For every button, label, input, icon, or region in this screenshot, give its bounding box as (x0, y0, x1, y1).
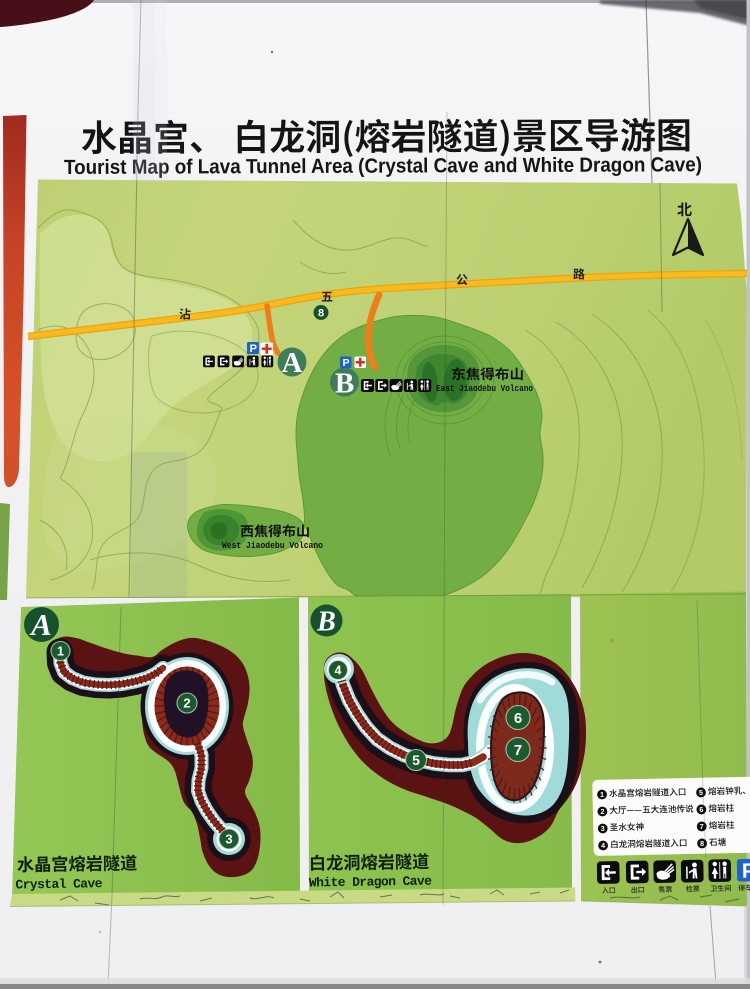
svg-text:7: 7 (700, 822, 704, 831)
svg-text:P: P (342, 357, 349, 369)
svg-text:B: B (335, 368, 354, 400)
svg-text:B: B (316, 607, 336, 638)
svg-text:3: 3 (601, 824, 605, 833)
svg-text:2: 2 (183, 696, 190, 711)
svg-text:1: 1 (57, 645, 64, 659)
svg-text:6: 6 (514, 710, 522, 727)
svg-text:Crystal Cave: Crystal Cave (15, 876, 102, 892)
svg-text:5: 5 (699, 788, 703, 797)
svg-text:6: 6 (699, 805, 703, 814)
svg-text:White Dragon Cave: White Dragon Cave (309, 874, 432, 891)
svg-text:4: 4 (335, 664, 342, 678)
svg-text:A: A (282, 347, 303, 379)
svg-text:A: A (29, 607, 52, 642)
svg-text:7: 7 (514, 742, 522, 759)
svg-text:1: 1 (600, 790, 604, 799)
svg-text:4: 4 (601, 841, 605, 850)
svg-text:3: 3 (225, 832, 232, 847)
svg-text:5: 5 (412, 752, 420, 768)
svg-text:East Jiaodebu Volcano: East Jiaodebu Volcano (436, 383, 533, 394)
svg-text:2: 2 (600, 807, 604, 816)
svg-text:P: P (742, 859, 750, 882)
svg-text:P: P (250, 343, 257, 355)
svg-text:West Jiaodebu Volcano: West Jiaodebu Volcano (222, 540, 323, 551)
svg-text:8: 8 (318, 308, 324, 320)
svg-text:8: 8 (700, 839, 704, 848)
